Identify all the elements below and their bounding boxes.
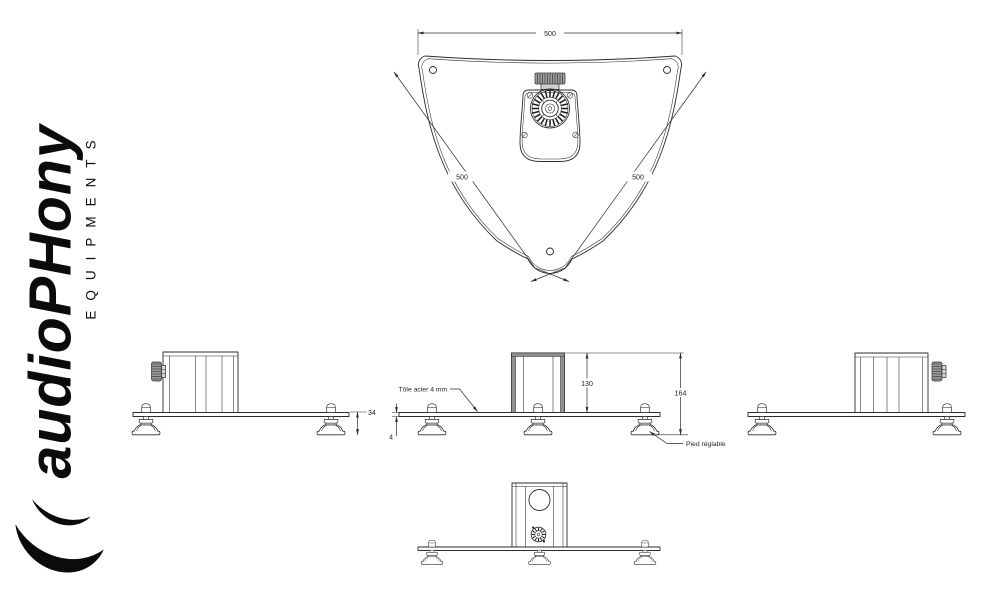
adjustable-foot (529, 550, 551, 564)
mount-block (512, 483, 567, 547)
technical-drawing: 500 500 500 (0, 0, 1000, 600)
dimension-side-right: 500 (632, 175, 644, 182)
side-view-right (748, 353, 965, 435)
drawing-sheet: audioPHony EQUIPMENTS (0, 0, 1000, 600)
dimension-plate-thickness: 4 (389, 435, 393, 442)
base-plate-edge (133, 413, 349, 417)
clamp-knob-icon (932, 362, 946, 381)
base-plate-edge (748, 413, 965, 417)
adjustable-foot (631, 404, 659, 435)
side-view-left: 34 (132, 352, 376, 435)
dimension-line-side-left (394, 72, 569, 282)
note-adjustable-foot: Pied réglable (686, 441, 726, 448)
dimension-side-left: 500 (456, 175, 468, 182)
front-view-bottom (418, 483, 660, 564)
dimension-line-side-right (531, 72, 706, 282)
mount-screws (522, 93, 579, 138)
mount-block (163, 352, 238, 413)
dimension-width: 500 (544, 31, 556, 38)
top-view: 500 500 500 (394, 28, 706, 282)
adjustable-foot (933, 404, 961, 435)
mount-block (855, 353, 928, 413)
dimension-total-height: 164 (675, 391, 687, 398)
pole-mount-top (520, 73, 580, 162)
knurled-ring (532, 91, 568, 127)
adjustable-foot (317, 404, 345, 435)
base-plate-edge (399, 413, 660, 417)
adjustable-foot (421, 540, 443, 564)
adjustable-foot (748, 404, 776, 435)
adjustable-foot (634, 540, 656, 564)
dimension-foot-height: 34 (368, 410, 376, 417)
mount-hole-left (430, 67, 437, 74)
mount-hole-bottom (547, 248, 554, 255)
side-view-front: 130 164 4 Tôle acier 4 mm Pied réglable (389, 353, 726, 448)
adjustable-foot (418, 404, 446, 435)
mount-hole-right (664, 67, 671, 74)
adjustable-foot (132, 404, 160, 435)
dimension-block-height: 130 (581, 381, 593, 388)
leader-sheet-steel (450, 389, 478, 412)
note-sheet-steel: Tôle acier 4 mm (399, 387, 448, 394)
